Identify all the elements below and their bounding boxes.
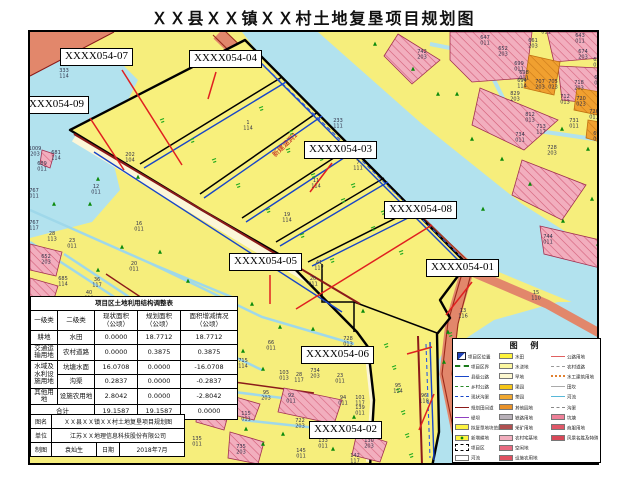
culvert-note: 新建涵洞1 bbox=[270, 130, 300, 159]
col-header: 面积增减情况 （公顷） bbox=[181, 311, 238, 331]
parcel-number: 626 011 bbox=[593, 57, 599, 68]
legend-label: 规划田间道 bbox=[471, 404, 494, 411]
table-cell: 耕地 bbox=[31, 331, 58, 345]
col-header: 一级类 bbox=[31, 311, 58, 331]
parcel-number: 96 118 bbox=[419, 393, 429, 404]
titleblock-unit: 江苏ＸＸ地理信息科技股份有限公司 bbox=[52, 429, 185, 443]
parcel-number: 728 203 bbox=[547, 145, 557, 156]
table-title: 项目区土地利用结构调整表 bbox=[31, 297, 238, 311]
legend-item: 设施农用地 bbox=[499, 453, 550, 463]
legend-label: 现状沟渠 bbox=[471, 394, 489, 401]
legend-item: 其他园地 bbox=[499, 402, 550, 412]
plot-label-09: XXXX054-09 bbox=[28, 96, 89, 114]
legend: 图 例 项目区位置项目区界县级公路乡村公路现状沟渠规划田间道堤坝拟复垦地块范围新… bbox=[452, 338, 601, 463]
legend-item: 旱地 bbox=[499, 371, 550, 381]
table-cell: 0.3875 bbox=[181, 345, 238, 361]
parcel-number: 652 203 bbox=[498, 46, 508, 57]
legend-column: 水田水浇地旱地果园茶园其他园地铁路用地采矿用地农村宅基地空闲地设施农用地 bbox=[499, 351, 550, 463]
table-cell: 水域及水利设施用地 bbox=[31, 360, 58, 388]
legend-title: 图 例 bbox=[455, 340, 598, 351]
legend-swatch-dashrect bbox=[455, 444, 469, 451]
legend-item: 风景名胜及特殊用地 bbox=[551, 433, 598, 443]
page-title: ＸＸ县ＸＸ镇ＸＸ村土地复垦项目规划图 bbox=[0, 5, 627, 29]
legend-swatch-rect bbox=[499, 414, 513, 420]
legend-label: 县级公路 bbox=[471, 373, 489, 380]
legend-swatch-dash bbox=[455, 386, 469, 387]
parcel-number: 681 114 bbox=[51, 150, 61, 161]
parcel-number: 20 011 bbox=[129, 261, 139, 272]
legend-item: 拟复垦地块范围 bbox=[455, 422, 499, 432]
parcel-number: 713 117 bbox=[536, 124, 546, 135]
table-cell: 0.3875 bbox=[138, 345, 181, 361]
table-cell: 坑塘水面 bbox=[58, 360, 95, 374]
legend-swatch-cp bbox=[457, 352, 466, 360]
parcel-number: 142 117 bbox=[350, 453, 360, 464]
legend-label: 果园 bbox=[515, 383, 524, 390]
legend-swatch-dot bbox=[551, 375, 565, 377]
legend-swatch-line bbox=[455, 417, 469, 418]
legend-item: 果园 bbox=[499, 382, 550, 392]
parcel-number: 829 203 bbox=[510, 91, 520, 102]
legend-item: 空闲地 bbox=[499, 443, 550, 453]
legend-item: 新增耕地 bbox=[455, 433, 499, 443]
legend-label: 其他园地 bbox=[515, 404, 533, 411]
legend-label: 风景名胜及特殊用地 bbox=[567, 434, 598, 441]
legend-item: 乡村公路 bbox=[455, 382, 499, 392]
legend-label: 乡村公路 bbox=[471, 383, 489, 390]
parcel-number: 15 110 bbox=[531, 290, 541, 301]
legend-item: 坑塘 bbox=[551, 412, 598, 422]
parcel-number: 694 114 bbox=[517, 78, 527, 89]
legend-swatch-rect bbox=[551, 424, 565, 430]
legend-swatch-rect bbox=[551, 414, 565, 420]
parcel-number: 705 023 bbox=[548, 79, 558, 90]
legend-column: 公路用地农村道路水工建筑用地田坎河流沟渠坑塘商服用地风景名胜及特殊用地 bbox=[551, 351, 598, 463]
parcel-number: 133 011 bbox=[318, 438, 328, 449]
legend-swatch-rect bbox=[499, 404, 513, 410]
legend-item: 农村宅基地 bbox=[499, 433, 550, 443]
parcel-number: 233 111 bbox=[333, 118, 343, 129]
plot-label-03: XXXX054-03 bbox=[304, 141, 377, 159]
col-header: 规划面积 （公顷） bbox=[138, 311, 181, 331]
legend-item: 农村道路 bbox=[551, 361, 598, 371]
title-block: 图名 ＸＸ县ＸＸ镇ＸＸ村土地复垦项目规划图 单位 江苏ＸＸ地理信息科技股份有限公… bbox=[30, 414, 185, 457]
table-cell: 农村道路 bbox=[58, 345, 95, 361]
legend-item: 采矿用地 bbox=[499, 422, 550, 432]
parcel-number: 647 011 bbox=[480, 35, 490, 46]
table-cell: 沟渠 bbox=[58, 374, 95, 388]
legend-swatch-rect bbox=[499, 373, 513, 379]
table-cell: -16.0708 bbox=[181, 360, 238, 374]
legend-swatch-rect bbox=[499, 384, 513, 390]
parcel-number: 1 114 bbox=[243, 120, 253, 131]
legend-item: 铁路用地 bbox=[499, 412, 550, 422]
legend-swatch-rect bbox=[499, 424, 513, 430]
table-cell: 0.0000 bbox=[138, 374, 181, 388]
legend-item: 河流 bbox=[551, 392, 598, 402]
legend-label: 新增耕地 bbox=[471, 434, 489, 441]
legend-label: 公路用地 bbox=[567, 353, 585, 360]
parcel-number: 16 011 bbox=[134, 221, 144, 232]
parcel-number: 661 203 bbox=[528, 38, 538, 49]
legend-label: 商服用地 bbox=[567, 424, 585, 431]
parcel-number: 685 114 bbox=[58, 276, 68, 287]
legend-label: 田坎 bbox=[567, 383, 576, 390]
titleblock-label: 图名 bbox=[31, 415, 52, 429]
plot-label-05: XXXX054-05 bbox=[229, 253, 302, 271]
legend-swatch-rect bbox=[499, 455, 513, 461]
legend-item: 现状沟渠 bbox=[455, 392, 499, 402]
landuse-table: 项目区土地利用结构调整表 一级类 二级类 现状面积 （公顷） 规划面积 （公顷）… bbox=[30, 296, 238, 420]
table-cell: 18.7712 bbox=[181, 331, 238, 345]
parcel-number: 139 011 bbox=[355, 405, 365, 416]
legend-item: 茶园 bbox=[499, 392, 550, 402]
legend-label: 旱地 bbox=[515, 373, 524, 380]
legend-label: 空闲地 bbox=[515, 445, 529, 452]
table-cell: 18.7712 bbox=[138, 331, 181, 345]
table-cell: 设施农用地 bbox=[58, 388, 95, 404]
parcel-number: 95 114 bbox=[393, 383, 403, 394]
legend-label: 水浇地 bbox=[515, 363, 529, 370]
parcel-number: 145 011 bbox=[296, 448, 306, 459]
legend-swatch-rect bbox=[455, 455, 469, 461]
parcel-number: 115 011 bbox=[241, 411, 251, 422]
planning-map-page: ＸＸ县ＸＸ镇ＸＸ村土地复垦项目规划图 bbox=[0, 0, 627, 478]
table-cell: 其他用地 bbox=[31, 388, 58, 404]
legend-swatch-rect bbox=[499, 363, 513, 369]
titleblock-date: 2018年7月 bbox=[120, 443, 185, 457]
legend-label: 设施农用地 bbox=[515, 455, 538, 462]
parcel-number: 692 011 bbox=[593, 131, 599, 142]
legend-item: 项目区界 bbox=[455, 361, 499, 371]
parcel-number: 720 023 bbox=[576, 96, 586, 107]
table-cell: 0.2837 bbox=[95, 374, 138, 388]
parcel-number: 722 203 bbox=[295, 418, 305, 429]
parcel-number: 135 011 bbox=[192, 436, 202, 447]
legend-swatch-line bbox=[551, 396, 565, 397]
titleblock-label: 单位 bbox=[31, 429, 52, 443]
table-cell: 0.0000 bbox=[181, 404, 238, 419]
legend-label: 堤坝 bbox=[471, 414, 480, 421]
table-cell: 水田 bbox=[58, 331, 95, 345]
col-header: 现状面积 （公顷） bbox=[95, 311, 138, 331]
legend-swatch-dash bbox=[455, 396, 469, 397]
parcel-number: 23 011 bbox=[335, 373, 345, 384]
titleblock-drafter: 袁灿生 bbox=[52, 443, 97, 457]
legend-item: 商服用地 bbox=[551, 422, 598, 432]
legend-swatch-line bbox=[551, 356, 565, 357]
legend-item: 堤坝 bbox=[455, 412, 499, 422]
table-cell: 0.0000 bbox=[138, 388, 181, 404]
plot-label-06: XXXX054-06 bbox=[301, 346, 374, 364]
table-cell: -0.2837 bbox=[181, 374, 238, 388]
table-cell: 0.0000 bbox=[95, 331, 138, 345]
titleblock-label: 制图 bbox=[31, 443, 52, 457]
parcel-number: 130 203 bbox=[364, 438, 374, 449]
legend-label: 茶园 bbox=[515, 394, 524, 401]
plot-label-07: XXXX054-07 bbox=[60, 48, 133, 66]
parcel-number: 652 203 bbox=[41, 254, 51, 265]
parcel-number: 731 011 bbox=[569, 118, 579, 129]
parcel-number: 680 011 bbox=[594, 75, 599, 86]
legend-swatch-rect bbox=[499, 445, 513, 451]
legend-label: 农村宅基地 bbox=[515, 434, 538, 441]
legend-item: 项目区 bbox=[455, 443, 499, 453]
parcel-number: 66 011 bbox=[266, 340, 276, 351]
parcel-number: 13 116 bbox=[458, 308, 468, 319]
table-cell: 0.0000 bbox=[95, 345, 138, 361]
parcel-number: 712 013 bbox=[560, 94, 570, 105]
parcel-number: 767 011 bbox=[29, 188, 39, 199]
legend-swatch-line bbox=[455, 407, 469, 408]
parcel-number: 715 114 bbox=[238, 358, 248, 369]
table-cell: -2.8042 bbox=[181, 388, 238, 404]
parcel-number: 28 113 bbox=[47, 231, 57, 242]
titleblock-label: 日期 bbox=[97, 443, 120, 457]
legend-swatch-rect bbox=[499, 353, 513, 359]
legend-swatch-dash bbox=[551, 366, 565, 367]
parcel-number: 735 203 bbox=[236, 444, 246, 455]
legend-item: 水工建筑用地 bbox=[551, 371, 598, 381]
parcel-number: 11 114 bbox=[311, 178, 321, 189]
parcel-number: 20 011 bbox=[308, 276, 318, 287]
parcel-number: 628 011 bbox=[541, 30, 551, 35]
legend-swatch-rect bbox=[455, 424, 469, 430]
parcel-number: 103 013 bbox=[279, 370, 289, 381]
titleblock-map-name: ＸＸ县ＸＸ镇ＸＸ村土地复垦项目规划图 bbox=[52, 415, 185, 429]
legend-item: 河流 bbox=[455, 453, 499, 463]
table-cell: 2.8042 bbox=[95, 388, 138, 404]
plot-label-08: XXXX054-08 bbox=[384, 201, 457, 219]
parcel-number: 12 011 bbox=[91, 184, 101, 195]
plot-label-01: XXXX054-01 bbox=[426, 259, 499, 277]
parcel-number: 36 117 bbox=[92, 277, 102, 288]
legend-label: 铁路用地 bbox=[515, 414, 533, 421]
legend-swatch-rectdot bbox=[455, 435, 469, 441]
parcel-number: 94 011 bbox=[338, 395, 348, 406]
parcel-number: 744 011 bbox=[543, 234, 553, 245]
legend-swatch-rect bbox=[499, 394, 513, 400]
parcel-number: 23 011 bbox=[67, 238, 77, 249]
parcel-number: 734 011 bbox=[515, 132, 525, 143]
legend-label: 水田 bbox=[515, 353, 524, 360]
legend-label: 沟渠 bbox=[567, 404, 576, 411]
table-cell: 交通运输用地 bbox=[31, 345, 58, 361]
parcel-number: 689 011 bbox=[37, 161, 47, 172]
legend-label: 农村道路 bbox=[567, 363, 585, 370]
legend-item: 项目区位置 bbox=[455, 351, 499, 361]
parcel-number: 742 203 bbox=[417, 49, 427, 60]
legend-label: 河流 bbox=[567, 394, 576, 401]
parcel-number: 707 203 bbox=[535, 79, 545, 90]
parcel-number: 643 011 bbox=[575, 33, 585, 44]
parcel-number: 767 117 bbox=[29, 220, 39, 231]
parcel-number: 41 117 bbox=[314, 260, 324, 271]
legend-column: 项目区位置项目区界县级公路乡村公路现状沟渠规划田间道堤坝拟复垦地块范围新增耕地项… bbox=[455, 351, 499, 463]
legend-swatch-line bbox=[455, 376, 469, 377]
parcel-number: 92 011 bbox=[286, 393, 296, 404]
legend-item: 县级公路 bbox=[455, 371, 499, 381]
legend-item: 田坎 bbox=[551, 382, 598, 392]
legend-swatch-line bbox=[551, 386, 565, 387]
table-cell: 0.0000 bbox=[138, 360, 181, 374]
parcel-number: 726 011 bbox=[589, 109, 599, 120]
parcel-number: 95 203 bbox=[261, 390, 271, 401]
parcel-number: 28 117 bbox=[294, 372, 304, 383]
parcel-number: 202 104 bbox=[125, 152, 135, 163]
legend-item: 沟渠 bbox=[551, 402, 598, 412]
legend-item: 水浇地 bbox=[499, 361, 550, 371]
legend-label: 项目区 bbox=[471, 445, 485, 452]
legend-label: 坑塘 bbox=[567, 414, 576, 421]
table-cell: 16.0708 bbox=[95, 360, 138, 374]
plot-label-04: XXXX054-04 bbox=[189, 50, 262, 68]
legend-label: 拟复垦地块范围 bbox=[471, 424, 499, 431]
legend-label: 采矿用地 bbox=[515, 424, 533, 431]
parcel-number: 812 013 bbox=[525, 112, 535, 123]
parcel-number: 1009 203 bbox=[29, 146, 42, 157]
legend-item: 水田 bbox=[499, 351, 550, 361]
col-header: 二级类 bbox=[58, 311, 95, 331]
legend-swatch-dash2 bbox=[455, 365, 469, 367]
legend-label: 水工建筑用地 bbox=[567, 373, 594, 380]
parcel-number: 333 114 bbox=[59, 68, 69, 79]
legend-swatch-dash bbox=[551, 407, 565, 408]
legend-label: 河流 bbox=[471, 455, 480, 462]
legend-label: 项目区位置 bbox=[468, 353, 491, 360]
parcel-number: 734 203 bbox=[310, 368, 320, 379]
parcel-number: 718 203 bbox=[574, 80, 584, 91]
legend-item: 规划田间道 bbox=[455, 402, 499, 412]
legend-swatch-rect bbox=[551, 435, 565, 441]
parcel-number: 674 203 bbox=[578, 49, 588, 60]
parcel-number: 19 114 bbox=[282, 212, 292, 223]
legend-swatch-rect bbox=[499, 435, 513, 441]
plot-label-02: XXXX054-02 bbox=[309, 421, 382, 439]
parcel-number: 7 111 bbox=[353, 160, 363, 171]
legend-label: 项目区界 bbox=[471, 363, 489, 370]
legend-item: 公路用地 bbox=[551, 351, 598, 361]
